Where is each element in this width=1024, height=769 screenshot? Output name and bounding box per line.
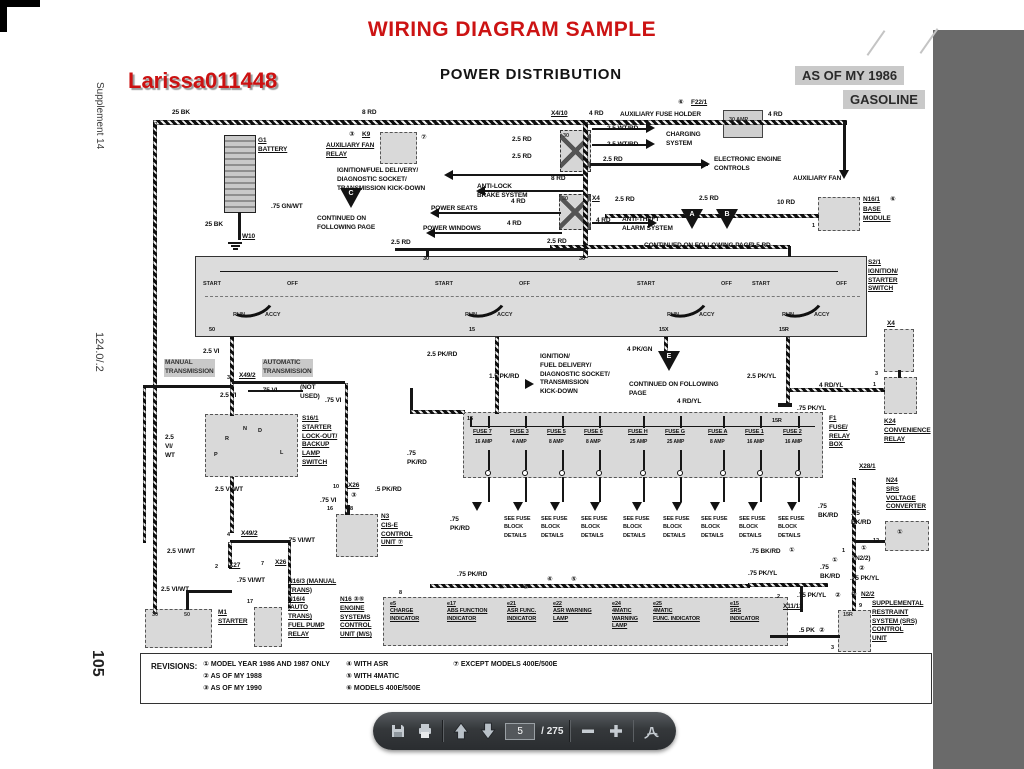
wire-arrow-r xyxy=(525,379,534,389)
diagram-label: X26 xyxy=(275,559,286,568)
diagram-label: 4 RD xyxy=(589,110,603,119)
diagram-label: (NOT USED) xyxy=(300,384,320,402)
diagram-label: ELECTRONIC ENGINE CONTROLS xyxy=(714,156,781,174)
diagram-label: 8 RD xyxy=(362,109,376,118)
diagram-label: POWER WINDOWS xyxy=(423,225,481,234)
diagram-label: .75 PK/RD xyxy=(457,571,487,580)
indicator-name: ASR FUNC. INDICATOR xyxy=(507,608,536,623)
ground-symbol xyxy=(228,242,242,244)
diagram-label: N16/1 xyxy=(863,196,880,205)
component-box xyxy=(380,132,417,164)
fuse-amp: 8 AMP xyxy=(549,439,564,446)
wire-arrow-d xyxy=(550,502,560,511)
page-ref-triangle: B xyxy=(716,209,738,229)
wire xyxy=(525,477,527,502)
indicator-item: e5CHARGE INDICATOR xyxy=(390,601,419,623)
next-page-button[interactable] xyxy=(478,720,500,742)
fuse-label: FUSE 7 xyxy=(473,429,492,436)
ignition-switch-group: STARTOFFRUNACCY xyxy=(752,281,862,326)
connector-ring xyxy=(522,470,528,476)
component-box xyxy=(336,514,378,557)
diagram-label: ② xyxy=(819,627,824,636)
indicator-item: e15SRS INDICATOR xyxy=(730,601,759,623)
fuse-amp: 16 AMP xyxy=(747,439,764,446)
switch-position-off: OFF xyxy=(519,281,530,287)
diagram-label: IGNITION/ FUEL DELIVERY/ DIAGNOSTIC SOCK… xyxy=(540,353,610,397)
diagram-label: ① xyxy=(897,529,902,538)
wire xyxy=(232,381,345,384)
wire xyxy=(723,477,725,502)
arrow-down-icon xyxy=(479,722,497,740)
indicator-id: e5 xyxy=(390,601,419,608)
switch-position-accy: ACCY xyxy=(699,312,715,318)
diagram-label: .75 GN/WT xyxy=(271,203,303,212)
wire xyxy=(798,477,800,502)
diagram-label: 2.5 VI xyxy=(220,392,236,401)
page-number-input[interactable]: 5 xyxy=(505,723,535,740)
diagram-label: ⑤ xyxy=(571,576,576,585)
wire xyxy=(664,337,668,352)
wire xyxy=(488,416,490,428)
previous-page-button[interactable] xyxy=(450,720,472,742)
revision-note: ② AS OF MY 1988 xyxy=(203,672,262,680)
wire xyxy=(643,477,645,502)
diagram-label: CONTINUED ON FOLLOWING PAGE xyxy=(644,242,753,251)
diagram-label: 9 xyxy=(859,603,862,610)
fuse-label: FUSE G xyxy=(665,429,685,436)
wire xyxy=(643,416,645,428)
diagram-label: X11/13 xyxy=(783,603,803,612)
diagram-label: 2.5 RD xyxy=(603,156,623,165)
wire xyxy=(525,450,527,470)
wire xyxy=(410,410,465,414)
wire xyxy=(599,477,601,502)
wire xyxy=(230,337,234,416)
switch-position-start: START xyxy=(752,281,770,287)
diagram-label: 50 xyxy=(209,327,215,334)
diagram-label: 2.5 VI xyxy=(203,348,219,357)
diagram-label: 8 xyxy=(399,590,402,597)
wire-arrow-r xyxy=(646,139,655,149)
wire xyxy=(230,540,290,543)
connector-ring xyxy=(596,470,602,476)
diagram-label: .75 BK/RD xyxy=(818,503,838,521)
diagram-label: X26 xyxy=(348,482,359,491)
diagram-label: AUTOMATIC TRANSMISSION xyxy=(262,359,313,377)
diagram-label: POWER SEATS xyxy=(431,205,477,214)
diagram-label: AUXILIARY FAN RELAY xyxy=(326,142,374,160)
fuse-label: FUSE 1 xyxy=(745,429,764,436)
diagram-label: 4 xyxy=(227,532,230,539)
diagram-label: AUXILIARY FAN xyxy=(793,175,841,184)
indicator-item: e244MATIC WARNING LAMP xyxy=(612,601,638,631)
diagram-label: MANUAL TRANSMISSION xyxy=(164,359,215,377)
revision-note: ③ AS OF MY 1990 xyxy=(203,684,262,692)
switch-position-accy: ACCY xyxy=(497,312,513,318)
diagram-label: AUXILIARY FUSE HOLDER xyxy=(620,111,701,120)
diagram-label: 2.5 RD xyxy=(615,196,635,205)
indicator-id: e25 xyxy=(653,601,700,608)
diagram-label: F22/1 xyxy=(691,99,707,108)
revision-note: ⑥ MODELS 400E/500E xyxy=(346,684,420,692)
diagram-label: 30 xyxy=(423,256,429,263)
wire xyxy=(562,416,564,428)
page-ref-triangle: E xyxy=(658,351,680,371)
indicator-item: e17ABS FUNCTION INDICATOR xyxy=(447,601,487,623)
diagram-label: 4 RD xyxy=(596,217,610,226)
diagram-label: BASE MODULE xyxy=(863,206,891,224)
switch-position-start: START xyxy=(637,281,655,287)
save-icon xyxy=(390,723,406,739)
diagram-label: ③ xyxy=(349,131,354,140)
diagram-label: .75 VI/WT xyxy=(287,537,315,546)
wire xyxy=(143,387,146,543)
wire xyxy=(798,416,800,428)
diagram-label: 15R xyxy=(843,612,853,619)
toolbar-separator xyxy=(569,720,571,742)
pdf-viewer-screen: WIRING DIAGRAM SAMPLE Larissa011448 POWE… xyxy=(0,0,1024,769)
minus-icon xyxy=(580,723,596,739)
diagram-label: ① xyxy=(789,547,794,556)
diagram-label: 2.5 PK/YL xyxy=(747,373,776,382)
wire xyxy=(345,383,348,515)
fuse-label: FUSE 2 xyxy=(783,429,802,436)
ignition-switch-group: STARTOFFRUNACCY xyxy=(637,281,747,326)
component-box xyxy=(885,521,929,551)
diagram-label: W10 xyxy=(242,233,255,242)
diagram-label: 12 xyxy=(873,538,879,545)
component-box xyxy=(884,329,914,372)
diagram-label: 4 RD xyxy=(511,198,525,207)
diagram-label: X4 xyxy=(887,320,895,329)
diagram-label: 4 RD/YL xyxy=(677,398,701,407)
wire-arrow-d xyxy=(710,502,720,511)
connector-ring xyxy=(720,470,726,476)
indicator-id: e21 xyxy=(507,601,536,608)
diagram-label: 7 xyxy=(261,561,264,568)
diagram-label: ① xyxy=(861,545,866,554)
diagram-label: 2.5 PK/RD xyxy=(427,351,457,360)
diagram-label: 2.5 RD xyxy=(751,242,771,251)
diagram-label: CONTINUED ON FOLLOWING PAGE xyxy=(629,381,719,399)
diagram-label: 4 RD/YL xyxy=(819,382,843,391)
diagram-label: 30 xyxy=(579,256,585,263)
indicator-id: e15 xyxy=(730,601,759,608)
diagram-label: 2.5 RD xyxy=(391,239,411,248)
wire xyxy=(786,337,790,404)
indicator-name: SRS INDICATOR xyxy=(730,608,759,623)
diagram-label: N24 SRS VOLTAGE CONVERTER xyxy=(886,477,926,512)
diagram-label: 2.5 RD xyxy=(512,136,532,145)
diagram-label: X49/2 xyxy=(241,530,258,539)
zoom-out-button[interactable] xyxy=(577,720,599,742)
diagram-label: IGNITION/FUEL DELIVERY/ DIAGNOSTIC SOCKE… xyxy=(337,167,425,193)
connector-ring xyxy=(677,470,683,476)
switch-position-accy: ACCY xyxy=(265,312,281,318)
wire xyxy=(395,248,585,251)
wire-arrow-d xyxy=(748,502,758,511)
diagram-label: 25 BK xyxy=(205,221,223,230)
diagram-label: 30 xyxy=(152,612,158,619)
wire xyxy=(488,477,490,502)
ground-symbol xyxy=(233,248,238,250)
page-count-label: / 275 xyxy=(541,726,563,737)
diagram-label: .75 VI/WT xyxy=(237,577,265,586)
diagram-label: X4/10 xyxy=(551,110,568,119)
indicator-name: ABS FUNCTION INDICATOR xyxy=(447,608,487,623)
diagram-label: (N2/2) xyxy=(853,555,870,564)
wire xyxy=(778,403,792,407)
fuse-label: FUSE H xyxy=(628,429,648,436)
revisions-heading: REVISIONS: xyxy=(151,662,197,671)
diagram-label: 2.5 VI/WT xyxy=(167,548,195,557)
diagram-label: 30 xyxy=(563,133,569,140)
wire xyxy=(143,385,233,388)
fuse-label: FUSE 3 xyxy=(510,429,529,436)
diagram-label: .75 PK/YL xyxy=(748,570,777,579)
wire-arrow-d xyxy=(513,502,523,511)
diagram-label: 15 xyxy=(469,327,475,334)
diagram-label: 2 xyxy=(215,564,218,571)
diagram-label: M1 STARTER xyxy=(218,609,248,627)
wire-arrow-d xyxy=(787,502,797,511)
diagram-label: ② xyxy=(835,592,840,601)
connector-ring xyxy=(640,470,646,476)
diagram-label: 50 xyxy=(184,612,190,619)
wire-arrow-l xyxy=(444,170,453,180)
indicator-item: e254MATIC FUNC. INDICATOR xyxy=(653,601,700,623)
component-box xyxy=(884,377,917,414)
diagram-label: L xyxy=(280,450,283,457)
diagram-label: N16/3 (MANUAL TRANS) N16/4 (AUTO TRANS) … xyxy=(288,578,336,639)
diagram-label: 30 AMP xyxy=(729,117,748,124)
diagram-label: P xyxy=(214,452,218,459)
diagram-label: 1 xyxy=(842,548,845,555)
wire xyxy=(723,450,725,470)
diagram-label: ② xyxy=(859,565,864,574)
diagram-label: .75 BK/RD xyxy=(820,564,840,582)
diagram-label: 2.5 VI/WT xyxy=(215,486,243,495)
component-box xyxy=(818,197,860,231)
diagram-label: 3 xyxy=(227,375,230,382)
diagram-label: 3 xyxy=(831,645,834,652)
wire xyxy=(898,370,901,378)
adobe-reader-icon xyxy=(643,723,660,740)
diagram-label: K9 xyxy=(362,131,370,140)
wire xyxy=(599,450,601,470)
wire xyxy=(843,122,846,174)
diagram-label: .75 VI xyxy=(261,387,277,396)
indicator-item: e21ASR FUNC. INDICATOR xyxy=(507,601,536,623)
diagram-label: 4 RD xyxy=(768,111,782,120)
fuse-amp: 8 AMP xyxy=(586,439,601,446)
diagram-label: X4 xyxy=(592,195,600,204)
diagram-label: 2.5 RD xyxy=(699,195,719,204)
zoom-in-button[interactable] xyxy=(605,720,627,742)
diagram-label: .75 PK/YL xyxy=(850,575,879,584)
diagram-label: ③ xyxy=(351,492,356,501)
fuse-amp: 25 AMP xyxy=(630,439,647,446)
ignition-switch-group: STARTOFFRUNACCY xyxy=(203,281,313,326)
pdf-toolbar[interactable]: 5 / 275 xyxy=(373,712,676,750)
diagram-label: 4 PK/GN xyxy=(627,346,652,355)
revisions-box: REVISIONS: ① MODEL YEAR 1986 AND 1987 ON… xyxy=(140,653,932,704)
fuse-amp: 16 AMP xyxy=(785,439,802,446)
see-fuse-note: SEE FUSE BLOCK DETAILS xyxy=(504,515,530,540)
indicator-name: 4MATIC FUNC. INDICATOR xyxy=(653,608,700,623)
diagram-label: S2/1 IGNITION/ STARTER SWITCH xyxy=(868,259,898,294)
wire xyxy=(723,416,725,428)
wire xyxy=(220,271,838,272)
wire-arrow-r xyxy=(701,159,710,169)
diagram-label: CONTINUED ON FOLLOWING PAGE xyxy=(317,215,375,233)
diagram-label: .75 VI xyxy=(325,397,341,406)
diagram-label: .5 PK/RD xyxy=(375,486,402,495)
revision-note: ⑤ WITH 4MATIC xyxy=(346,672,399,680)
wire-arrow-d xyxy=(632,502,642,511)
switch-position-accy: ACCY xyxy=(814,312,830,318)
diagram-label: N16 ③⑤ ENGINE SYSTEMS CONTROL UNIT (M/S) xyxy=(340,596,372,640)
wire xyxy=(680,450,682,470)
diagram-label: X27 xyxy=(229,562,240,571)
arrow-up-icon xyxy=(452,722,470,740)
revision-note: ⑦ EXCEPT MODELS 400E/500E xyxy=(453,660,557,668)
diagram-label: 2.5 RD xyxy=(547,238,567,247)
fuse-label: FUSE 6 xyxy=(584,429,603,436)
wire xyxy=(680,477,682,502)
see-fuse-note: SEE FUSE BLOCK DETAILS xyxy=(623,515,649,540)
diagram-label: R xyxy=(225,436,229,443)
indicator-name: ASR WARNING LAMP xyxy=(553,608,592,623)
wire xyxy=(760,450,762,470)
diagram-label: 1.5 PK/RD xyxy=(489,373,519,382)
switch-position-off: OFF xyxy=(721,281,732,287)
print-button[interactable] xyxy=(415,720,437,742)
diagram-label: X28/1 xyxy=(859,463,876,472)
connector-ring xyxy=(757,470,763,476)
switch-position-off: OFF xyxy=(836,281,847,287)
diagram-label: K24 CONVENIENCE RELAY xyxy=(884,418,931,444)
diagram-label: .75 PK/YL xyxy=(797,405,826,414)
indicator-name: CHARGE INDICATOR xyxy=(390,608,419,623)
component-box xyxy=(254,607,282,647)
diagram-label: .75 BK/RD xyxy=(750,548,781,557)
diagram-label: N3 CIS-E CONTROL UNIT ⑦ xyxy=(381,513,412,548)
wire xyxy=(760,416,762,428)
indicator-id: e17 xyxy=(447,601,487,608)
fuse-label: FUSE 5 xyxy=(547,429,566,436)
diagram-label: G1 BATTERY xyxy=(258,137,287,155)
diagram-label: 15X xyxy=(659,327,669,334)
diagram-label: 15R xyxy=(779,327,789,334)
page-ref-triangle: A xyxy=(681,209,703,229)
diagram-label: ② xyxy=(851,591,856,600)
diagram-label: .75 VI xyxy=(320,497,336,506)
wire xyxy=(562,450,564,470)
revision-note: ① MODEL YEAR 1986 AND 1987 ONLY xyxy=(203,660,330,668)
wire xyxy=(525,416,527,428)
wire xyxy=(186,590,232,593)
diagram-label: CHARGING SYSTEM xyxy=(666,131,701,149)
wire xyxy=(238,212,241,240)
wire xyxy=(488,450,490,470)
connector-ring xyxy=(485,470,491,476)
component-box xyxy=(224,135,256,213)
diagram-label: 2.5 RD xyxy=(512,153,532,162)
diagram-label: 15R xyxy=(772,418,782,425)
toolbar-separator xyxy=(442,720,444,742)
diagram-label: .75 BK/RD xyxy=(851,510,871,528)
diagram-label: 2 xyxy=(777,594,780,601)
diagram-label: 2.5 WT/RD xyxy=(607,125,638,134)
wire xyxy=(410,388,413,412)
diagram-label: .75 PK/RD xyxy=(450,516,470,534)
diagram-label: 25 BK xyxy=(172,109,190,118)
diagram-label: 4 RD xyxy=(507,220,521,229)
diagram-label: ⑦ xyxy=(421,134,426,143)
diagram-label: ④ xyxy=(547,576,552,585)
plus-icon xyxy=(608,723,624,739)
diagram-label: F1 FUSE/ RELAY BOX xyxy=(829,415,850,450)
diagram-label: S16/1 STARTER LOCK-OUT/ BACKUP LAMP SWIT… xyxy=(302,415,337,468)
diagram-label: 3 xyxy=(875,371,878,378)
diagram-label: N xyxy=(243,426,247,433)
wire xyxy=(760,477,762,502)
diagram-label: .75 PK/RD xyxy=(407,450,427,468)
diagram-label: ⑥ xyxy=(678,99,683,108)
fuse-amp: 4 AMP xyxy=(512,439,527,446)
fuse-amp: 25 AMP xyxy=(667,439,684,446)
indicator-id: e24 xyxy=(612,601,638,608)
wire xyxy=(562,477,564,502)
wire xyxy=(153,122,157,614)
diagram-label: ⑥ xyxy=(890,196,895,205)
wire xyxy=(643,450,645,470)
adobe-reader-button[interactable] xyxy=(640,720,662,742)
diagram-label: SUPPLEMENTAL RESTRAINT SYSTEM (SRS) CONT… xyxy=(872,600,923,644)
save-button[interactable] xyxy=(387,720,409,742)
indicator-id: e22 xyxy=(553,601,592,608)
see-fuse-note: SEE FUSE BLOCK DETAILS xyxy=(739,515,765,540)
see-fuse-note: SEE FUSE BLOCK DETAILS xyxy=(778,515,804,540)
ground-symbol xyxy=(231,245,240,247)
diagram-label: D xyxy=(258,428,262,435)
print-icon xyxy=(417,723,433,739)
diagram-label: 2.5 VI/ WT xyxy=(165,434,175,460)
diagram-label: .5 PK xyxy=(799,627,815,636)
toolbar-separator xyxy=(633,720,635,742)
switch-position-off: OFF xyxy=(287,281,298,287)
see-fuse-note: SEE FUSE BLOCK DETAILS xyxy=(701,515,727,540)
diagram-label: ⑤ xyxy=(523,584,528,593)
diagram-label: 1 xyxy=(873,382,876,389)
diagram-label: 10 xyxy=(333,484,339,491)
diagram-label: .75 PK/YL xyxy=(797,592,826,601)
diagram-label: X49/2 xyxy=(239,372,256,381)
switch-position-start: START xyxy=(203,281,221,287)
wire-arrow-d xyxy=(472,502,482,511)
diagram-label: N2/2 xyxy=(861,591,874,600)
fuse-amp: 16 AMP xyxy=(475,439,492,446)
diagram-label: 1 xyxy=(812,223,815,230)
diagram-label: ANTI-THEFT ALARM SYSTEM xyxy=(622,216,673,234)
diagram-label: 10 RD xyxy=(777,199,795,208)
wire xyxy=(788,246,791,257)
diagram-label: 2.5 WT/RD xyxy=(607,141,638,150)
indicator-name: 4MATIC WARNING LAMP xyxy=(612,608,638,630)
wire xyxy=(798,450,800,470)
indicator-item: e22ASR WARNING LAMP xyxy=(553,601,592,623)
